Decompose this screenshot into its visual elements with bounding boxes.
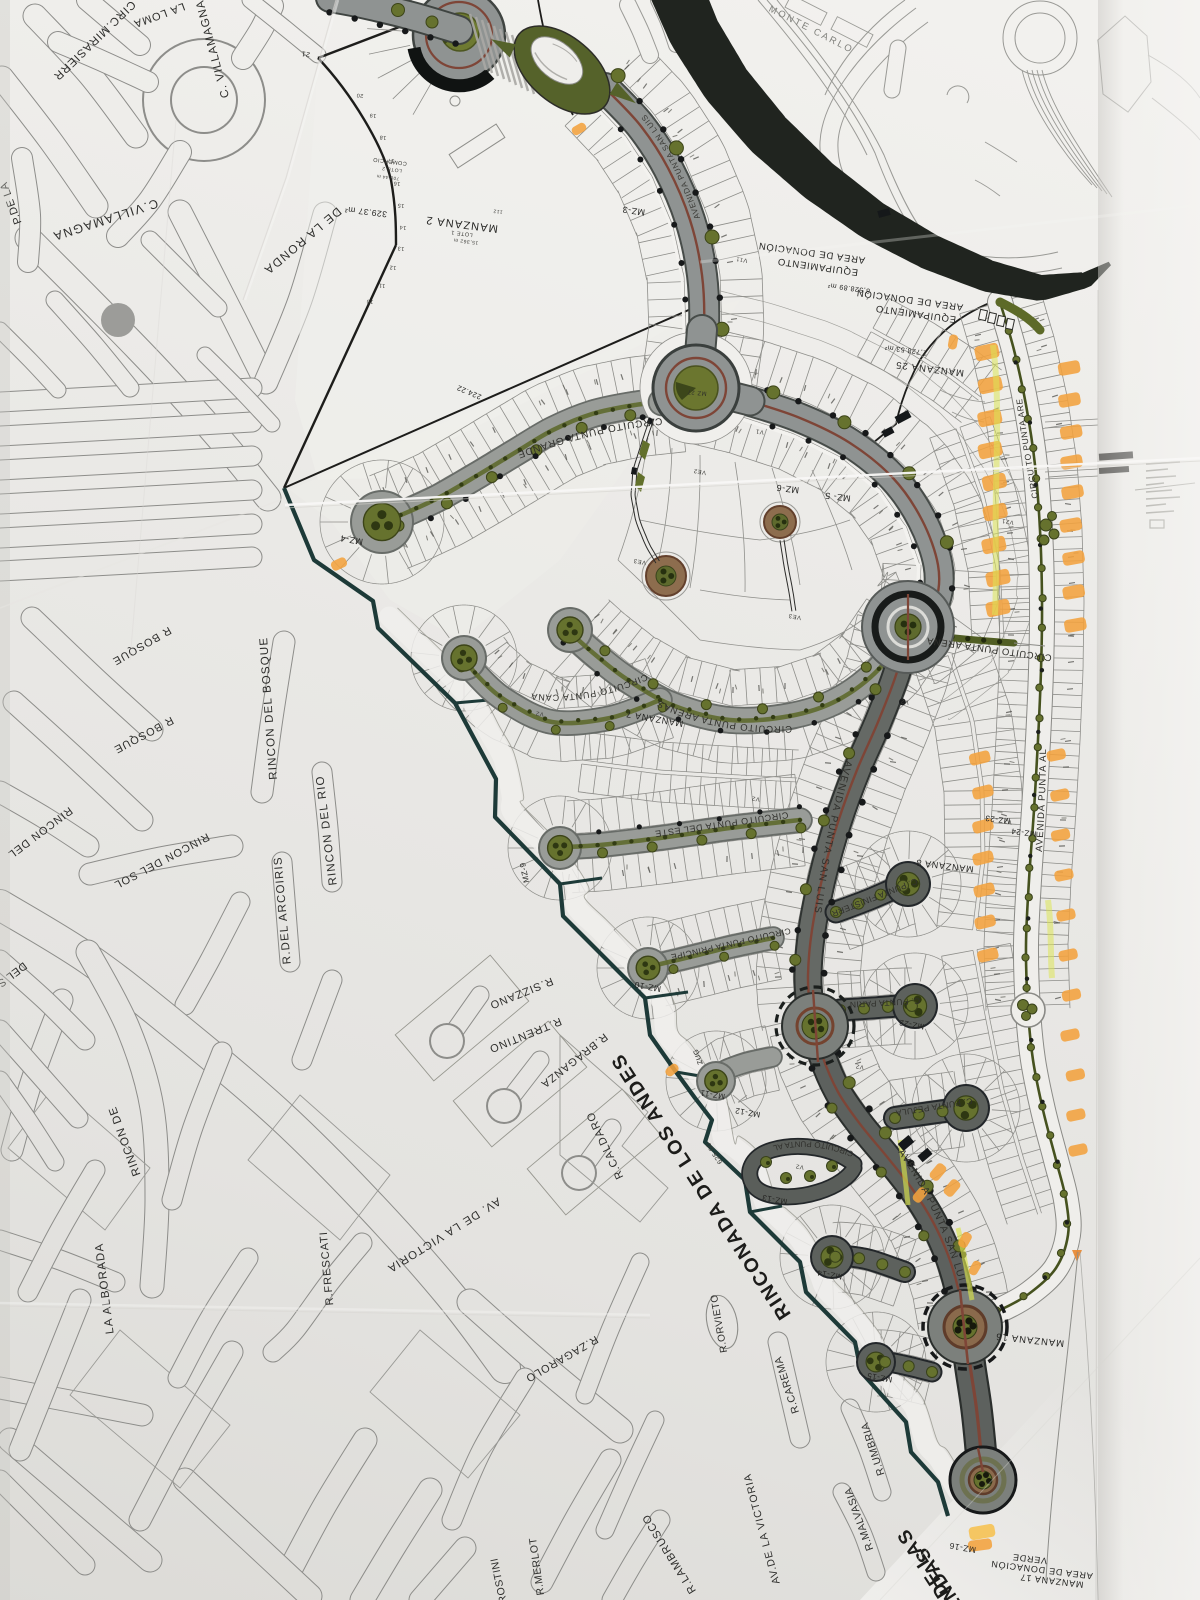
svg-text:19: 19 bbox=[369, 112, 377, 119]
svg-text:10: 10 bbox=[366, 298, 374, 305]
svg-text:112: 112 bbox=[493, 207, 503, 214]
svg-text:14: 14 bbox=[399, 224, 407, 231]
svg-text:15: 15 bbox=[397, 202, 405, 209]
svg-text:16: 16 bbox=[393, 180, 401, 187]
svg-text:11: 11 bbox=[378, 282, 385, 289]
svg-text:12: 12 bbox=[389, 264, 397, 271]
svg-text:13: 13 bbox=[397, 245, 405, 252]
svg-text:17: 17 bbox=[387, 157, 395, 164]
svg-text:20: 20 bbox=[356, 92, 364, 99]
svg-text:18: 18 bbox=[379, 134, 387, 141]
